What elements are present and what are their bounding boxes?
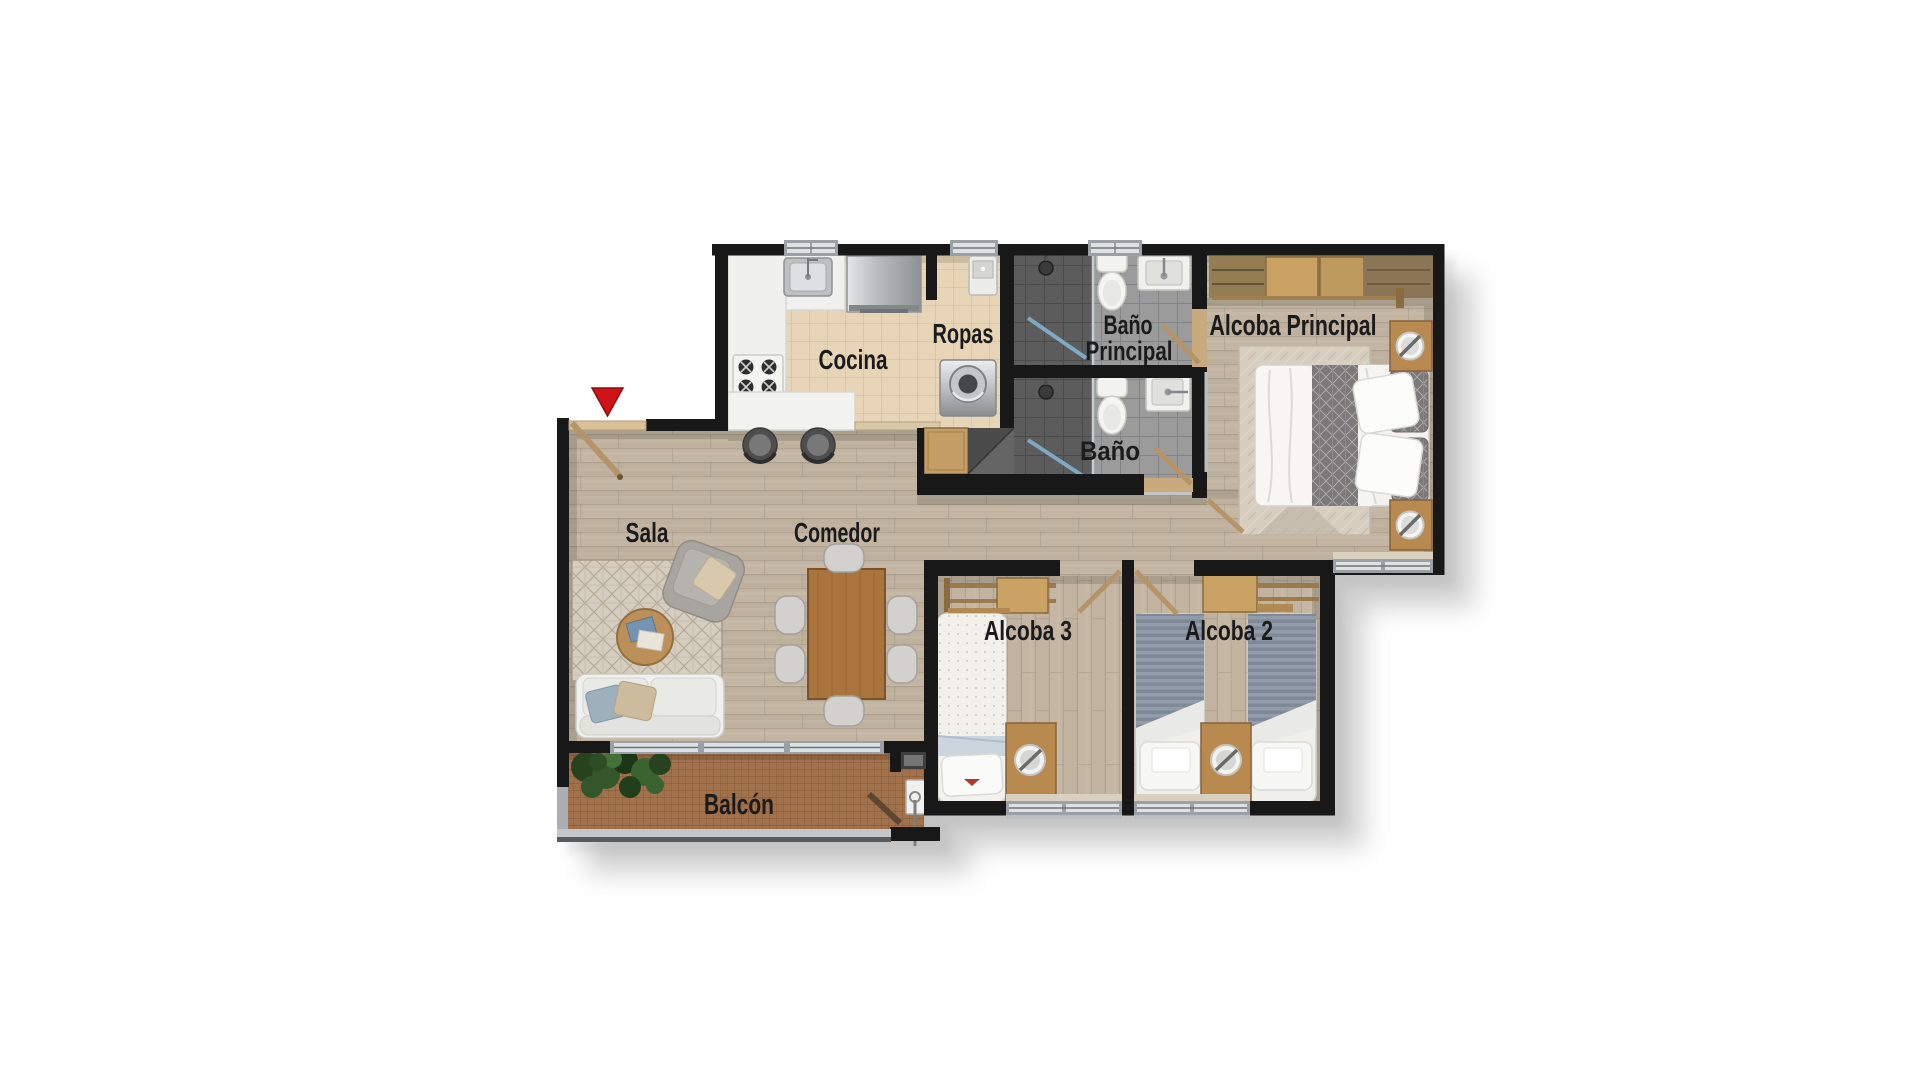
svg-text:Alcoba 3: Alcoba 3 — [984, 615, 1072, 646]
svg-text:Alcoba 2: Alcoba 2 — [1185, 615, 1273, 646]
svg-text:Baño: Baño — [1080, 436, 1140, 466]
svg-text:Cocina: Cocina — [819, 344, 888, 375]
svg-text:Alcoba Principal: Alcoba Principal — [1210, 310, 1377, 342]
svg-text:Ropas: Ropas — [933, 318, 994, 349]
svg-text:Principal: Principal — [1086, 336, 1173, 366]
svg-text:Balcón: Balcón — [704, 789, 774, 821]
svg-text:Sala: Sala — [626, 517, 669, 548]
svg-text:Comedor: Comedor — [794, 517, 880, 548]
